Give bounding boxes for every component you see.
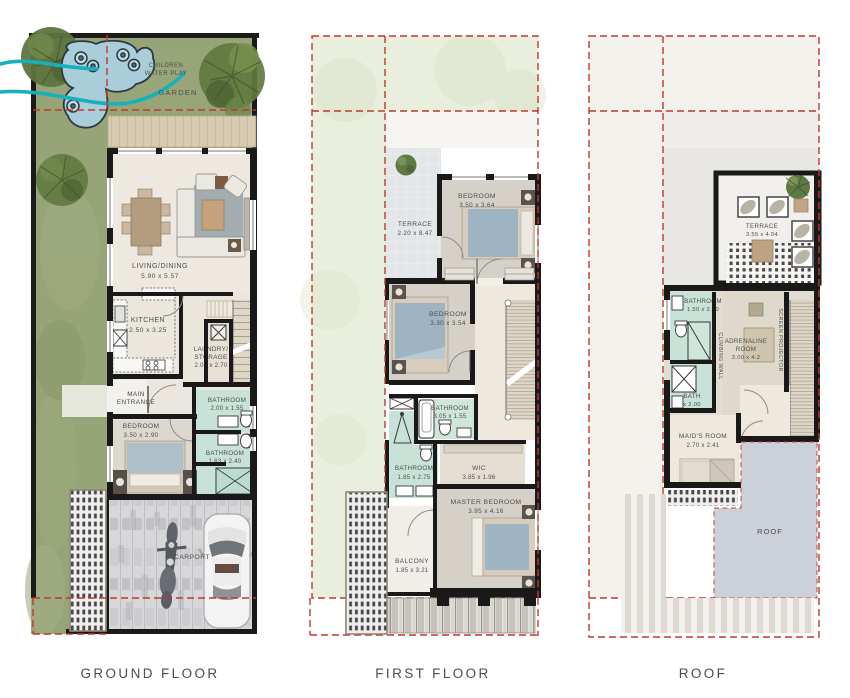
svg-text:3.95 x 4.16: 3.95 x 4.16 [468,508,504,515]
svg-text:3.05 x 1.55: 3.05 x 1.55 [434,414,467,420]
svg-text:GARDEN: GARDEN [158,88,197,97]
svg-text:2.20 x 8.47: 2.20 x 8.47 [397,230,432,237]
svg-text:WATER PLAY: WATER PLAY [145,71,188,77]
svg-text:BATHROOM: BATHROOM [208,397,246,404]
svg-text:2.00 x 1.55: 2.00 x 1.55 [211,406,244,412]
svg-text:BEDROOM: BEDROOM [429,311,467,318]
svg-text:CHILDREN: CHILDREN [149,63,184,69]
svg-text:ADRENALINE: ADRENALINE [725,338,768,345]
svg-text:LAUNDRY/: LAUNDRY/ [194,346,229,353]
svg-text:BATH: BATH [683,393,700,400]
svg-text:BATHROOM: BATHROOM [431,405,469,412]
svg-text:LIVING/DINING: LIVING/DINING [132,263,188,270]
svg-text:GROUND FLOOR: GROUND FLOOR [80,666,219,681]
svg-text:SCREEN PROJECTOR: SCREEN PROJECTOR [777,308,783,372]
svg-text:BATHROOM: BATHROOM [684,298,722,305]
svg-text:3.85 x 1.96: 3.85 x 1.96 [463,475,496,481]
svg-text:BALCONY: BALCONY [395,558,429,565]
svg-text:FIRST FLOOR: FIRST FLOOR [375,666,490,681]
svg-text:3.00 x 4.2: 3.00 x 4.2 [732,355,760,361]
svg-text:x 2.00: x 2.00 [683,402,701,408]
svg-text:WIC: WIC [472,465,486,472]
svg-text:2.70 x 2.41: 2.70 x 2.41 [687,443,720,449]
svg-text:KITCHEN: KITCHEN [131,317,165,324]
svg-text:TERRACE: TERRACE [746,223,778,230]
svg-text:TERRACE: TERRACE [398,221,433,228]
svg-text:1.85 x 2.75: 1.85 x 2.75 [398,475,431,481]
svg-text:2.00 x 2.70: 2.00 x 2.70 [195,363,228,369]
svg-text:1.85 x 3.21: 1.85 x 3.21 [396,568,429,574]
svg-text:3.50 x 3.64: 3.50 x 3.64 [459,202,495,209]
svg-text:ROOF: ROOF [757,527,783,536]
svg-text:BEDROOM: BEDROOM [123,423,160,430]
svg-text:ROOM: ROOM [736,346,756,353]
svg-text:3.50 x 2.90: 3.50 x 2.90 [123,432,158,439]
svg-text:5.90 x 5.57: 5.90 x 5.57 [141,273,179,280]
svg-text:BEDROOM: BEDROOM [458,193,496,200]
svg-text:BATHROOM: BATHROOM [206,450,244,457]
svg-text:ROOF: ROOF [679,666,728,681]
svg-text:MAIN: MAIN [127,391,145,398]
svg-text:3.30 x 3.54: 3.30 x 3.54 [430,320,466,327]
svg-text:STORAGE: STORAGE [194,354,227,361]
svg-text:CLIMBING WALL: CLIMBING WALL [717,332,723,379]
svg-text:2.50 x 3.25: 2.50 x 3.25 [129,327,167,334]
svg-text:3.55 x 4.04: 3.55 x 4.04 [746,232,778,238]
svg-text:BATHROOM: BATHROOM [395,465,433,472]
svg-text:MAID'S ROOM: MAID'S ROOM [679,433,727,440]
svg-text:MASTER BEDROOM: MASTER BEDROOM [451,499,522,506]
svg-text:CARPORT: CARPORT [174,554,210,561]
